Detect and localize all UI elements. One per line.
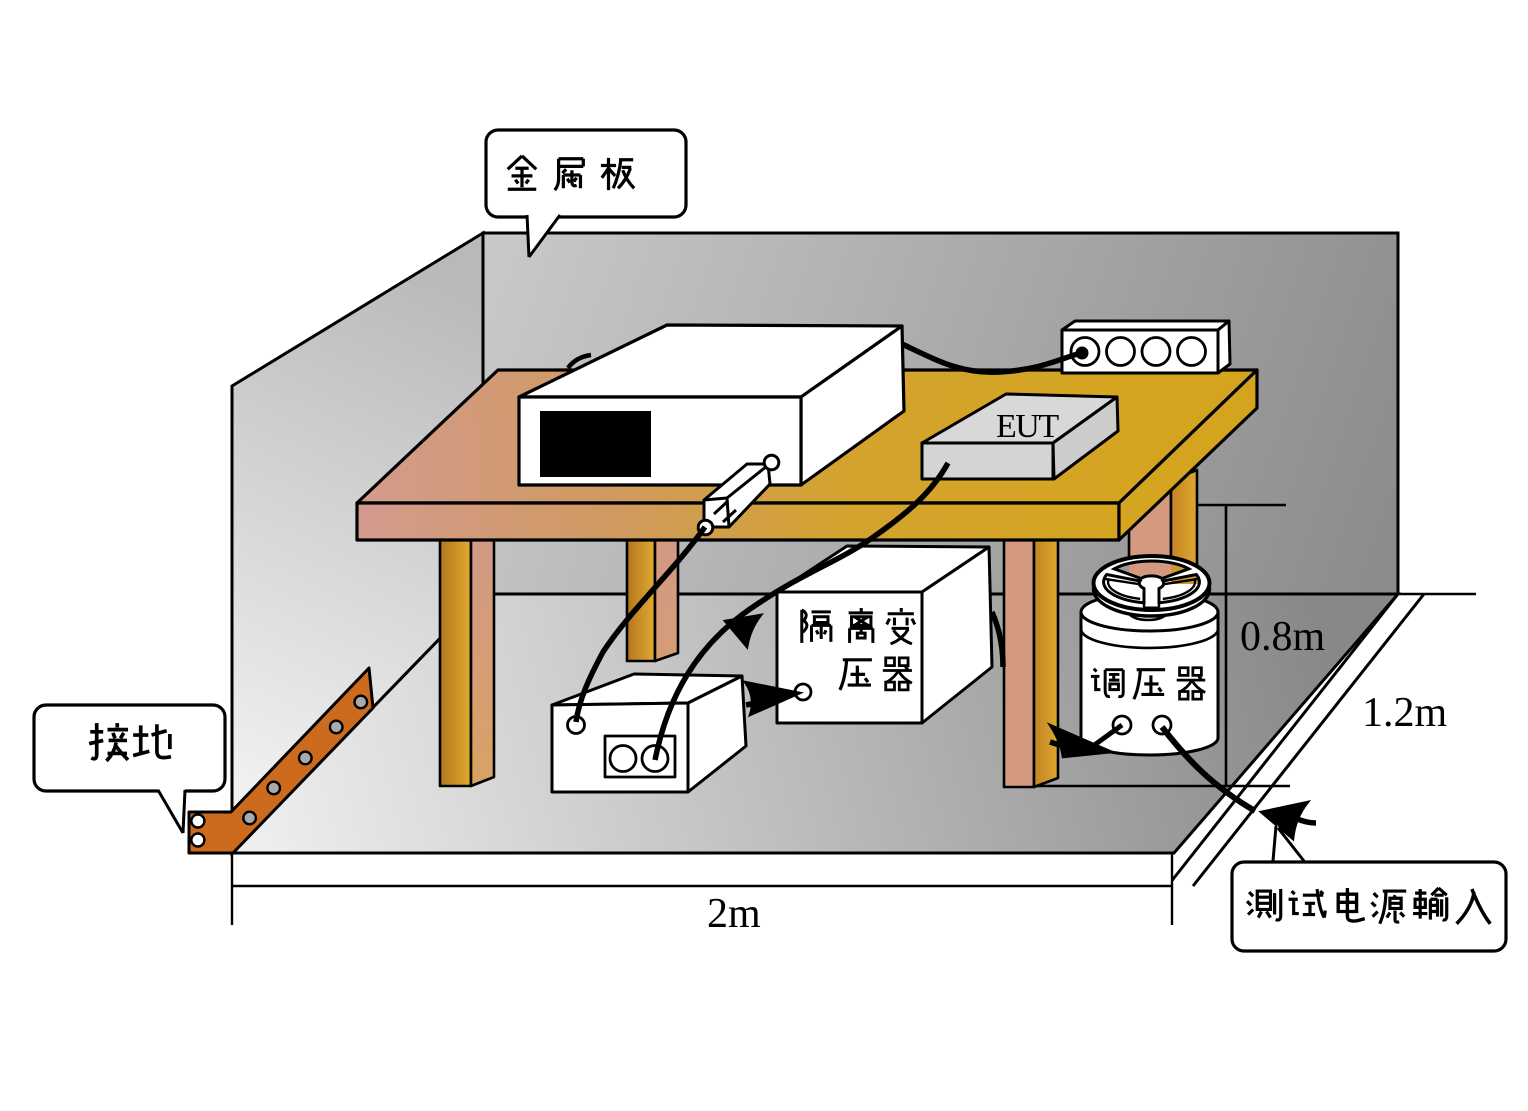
svg-text:EUT: EUT — [996, 408, 1059, 445]
svg-text:0.8m: 0.8m — [1240, 614, 1326, 660]
svg-text:1.2m: 1.2m — [1362, 690, 1448, 736]
svg-text:2m: 2m — [707, 891, 761, 937]
